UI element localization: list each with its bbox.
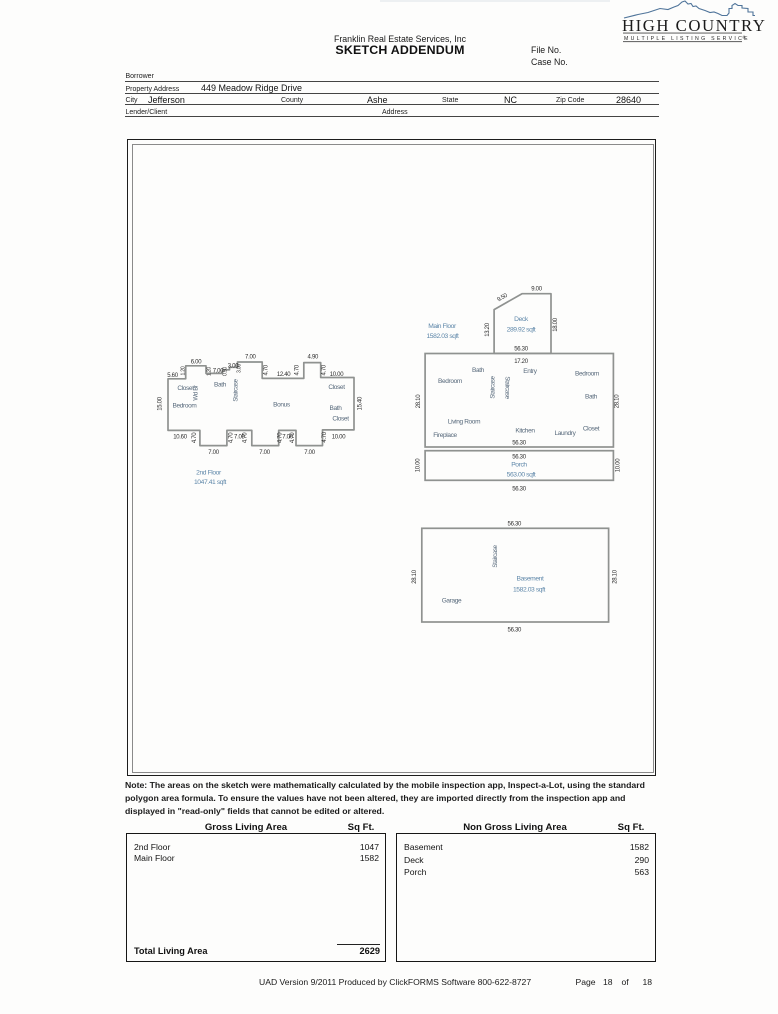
svg-text:Bonus: Bonus [273, 402, 291, 409]
svg-text:4.90: 4.90 [308, 355, 319, 361]
svg-text:Wd Br: Wd Br [193, 385, 200, 400]
svg-text:5.60: 5.60 [167, 373, 178, 379]
svg-text:28.10: 28.10 [612, 569, 618, 583]
svg-text:13.20: 13.20 [485, 322, 491, 336]
svg-text:Bath: Bath [214, 382, 227, 389]
svg-text:4.70: 4.70 [290, 432, 296, 443]
svg-text:Staircase: Staircase [490, 375, 497, 398]
svg-text:3.00: 3.00 [237, 364, 243, 373]
svg-text:2nd Floor: 2nd Floor [196, 470, 222, 477]
svg-text:1.20: 1.20 [207, 367, 213, 376]
svg-text:563.00 sqft: 563.00 sqft [507, 471, 536, 478]
svg-text:Bedroom: Bedroom [173, 403, 197, 410]
svg-text:Main Floor: Main Floor [428, 323, 457, 330]
svg-text:Porch: Porch [511, 462, 527, 469]
svg-text:4.70: 4.70 [264, 364, 270, 375]
svg-text:6.00: 6.00 [191, 360, 202, 366]
svg-text:28.10: 28.10 [412, 569, 418, 583]
svg-text:Closet: Closet [332, 416, 349, 423]
svg-text:4.70: 4.70 [295, 364, 301, 375]
svg-text:4.70: 4.70 [322, 364, 328, 375]
svg-text:56.30: 56.30 [508, 522, 522, 528]
svg-text:Living Room: Living Room [448, 419, 480, 426]
svg-text:4.70: 4.70 [242, 432, 248, 443]
svg-text:Staircase: Staircase [492, 544, 499, 567]
svg-text:Entry: Entry [523, 368, 538, 375]
svg-text:15.00: 15.00 [158, 396, 164, 410]
svg-text:Fireplace: Fireplace [433, 432, 457, 439]
svg-text:10.00: 10.00 [332, 435, 346, 441]
svg-text:4.70: 4.70 [322, 431, 328, 442]
svg-text:10.00: 10.00 [416, 458, 422, 472]
svg-text:Garage: Garage [442, 597, 462, 604]
svg-text:1582.03 sqft: 1582.03 sqft [513, 587, 546, 594]
svg-text:Bath: Bath [585, 394, 598, 401]
svg-text:9.00: 9.00 [531, 287, 542, 293]
svg-text:56.30: 56.30 [508, 627, 522, 633]
svg-text:Bath: Bath [330, 405, 343, 412]
svg-text:10.00: 10.00 [330, 372, 344, 378]
svg-text:1.20: 1.20 [181, 366, 187, 375]
svg-text:18.00: 18.00 [553, 317, 559, 331]
svg-text:56.30: 56.30 [512, 441, 526, 447]
svg-text:56.30: 56.30 [512, 455, 526, 461]
svg-text:12.40: 12.40 [277, 372, 291, 378]
svg-text:10.60: 10.60 [173, 435, 187, 441]
svg-text:1582.03 sqft: 1582.03 sqft [426, 333, 459, 340]
svg-text:15.40: 15.40 [358, 396, 364, 410]
svg-text:Staircase: Staircase [504, 376, 511, 399]
svg-text:7.00: 7.00 [208, 450, 219, 456]
svg-text:Deck: Deck [514, 316, 529, 323]
svg-text:Bedroom: Bedroom [575, 371, 599, 378]
svg-text:28.10: 28.10 [615, 394, 621, 408]
svg-text:7.00: 7.00 [245, 355, 256, 361]
svg-text:Staircase: Staircase [233, 378, 240, 401]
svg-text:28.10: 28.10 [416, 394, 422, 408]
svg-text:Bedroom: Bedroom [438, 378, 462, 385]
svg-text:1047.41 sqft: 1047.41 sqft [194, 479, 227, 486]
svg-text:Bath: Bath [472, 367, 485, 374]
svg-text:56.30: 56.30 [514, 347, 528, 353]
svg-text:289.92 sqft: 289.92 sqft [507, 327, 536, 334]
svg-text:Kitchen: Kitchen [515, 427, 535, 434]
svg-text:56.30: 56.30 [512, 487, 526, 493]
svg-text:17.20: 17.20 [514, 359, 528, 365]
svg-text:7.00: 7.00 [259, 450, 270, 456]
svg-text:Laundry: Laundry [554, 430, 576, 437]
svg-text:Closet: Closet [583, 426, 600, 433]
svg-text:4.70: 4.70 [192, 432, 198, 443]
svg-text:Closet: Closet [328, 384, 345, 391]
svg-text:7.00: 7.00 [304, 450, 315, 456]
svg-text:10.00: 10.00 [615, 458, 621, 472]
svg-text:Basement: Basement [517, 575, 544, 582]
